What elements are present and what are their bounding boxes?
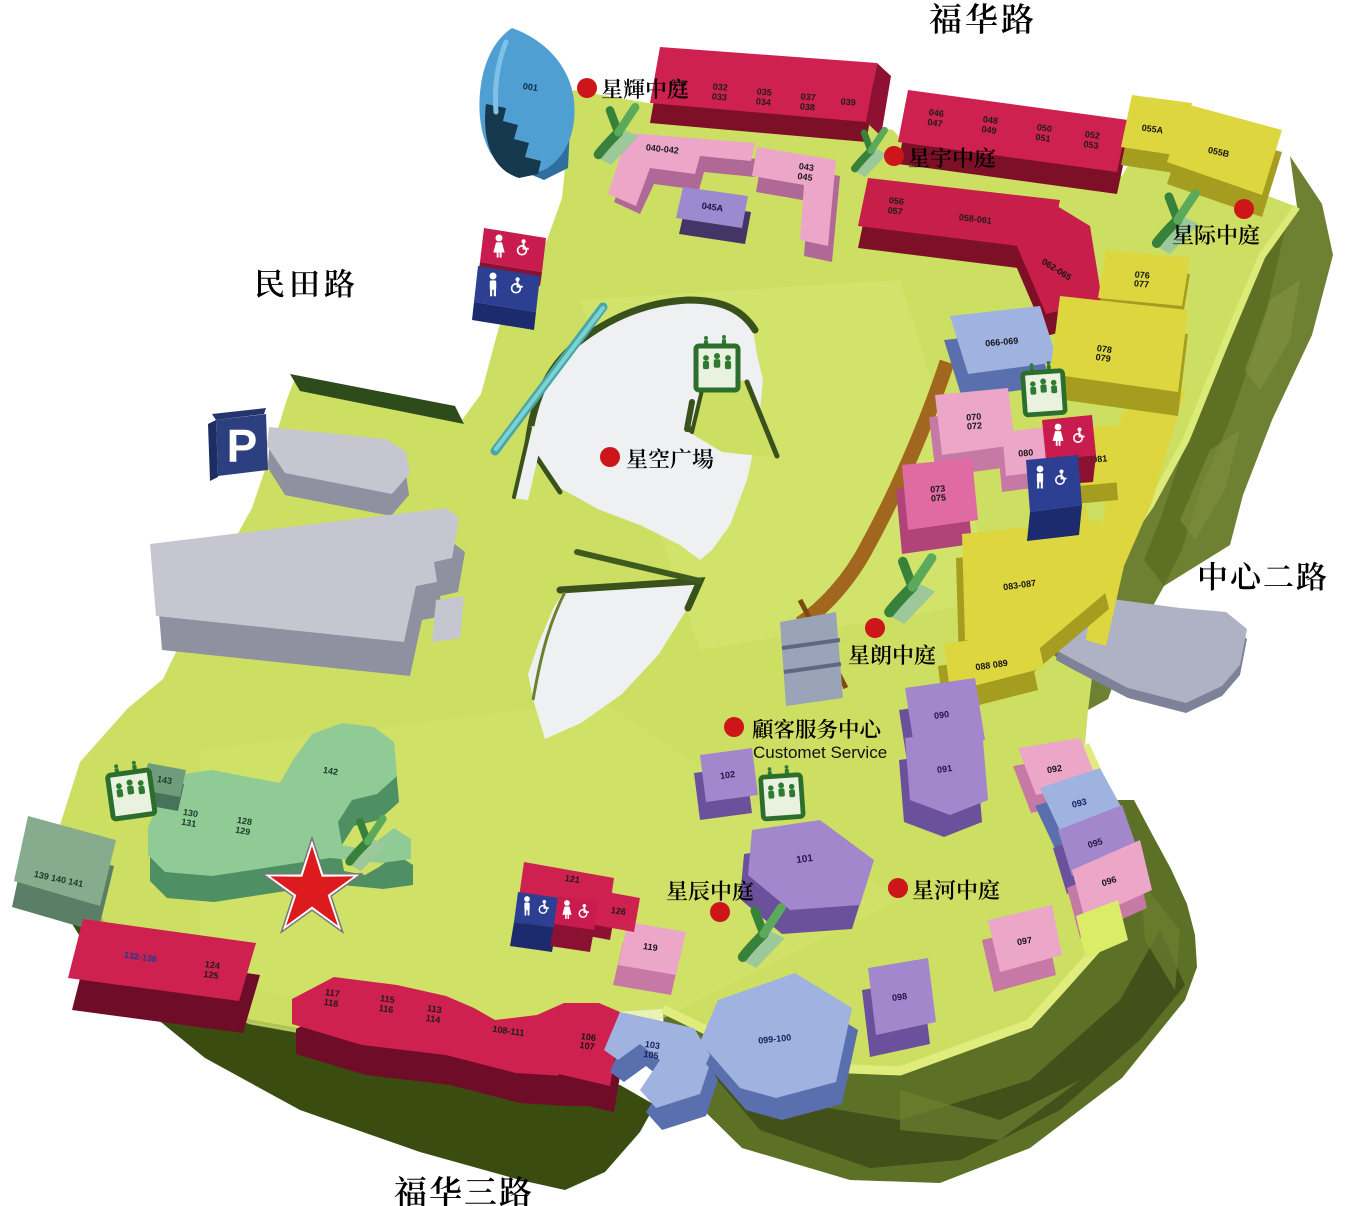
svg-text:050051: 050051 [1035, 122, 1053, 144]
svg-text:119: 119 [643, 941, 659, 953]
svg-text:032033: 032033 [711, 81, 728, 102]
svg-text:037038: 037038 [799, 91, 816, 112]
svg-text:103105: 103105 [643, 1039, 661, 1061]
svg-text:080: 080 [1018, 447, 1034, 458]
svg-text:001: 001 [522, 81, 538, 93]
svg-text:078079: 078079 [1095, 343, 1113, 364]
svg-text:070072: 070072 [966, 411, 983, 431]
svg-text:091: 091 [936, 763, 952, 775]
svg-text:073075: 073075 [930, 483, 947, 503]
svg-text:098: 098 [891, 991, 907, 1003]
svg-text:102: 102 [719, 769, 735, 781]
svg-text:090: 090 [933, 709, 949, 721]
svg-text:121: 121 [564, 873, 580, 885]
svg-text:113114: 113114 [425, 1003, 442, 1025]
svg-text:076077: 076077 [1134, 269, 1151, 289]
svg-text:126: 126 [610, 905, 626, 917]
svg-text:124125: 124125 [203, 959, 221, 981]
svg-text:P: P [227, 420, 258, 472]
svg-text:056057: 056057 [887, 195, 904, 217]
svg-text:043045: 043045 [797, 161, 815, 183]
svg-text:046047: 046047 [927, 107, 945, 129]
svg-text:048049: 048049 [981, 114, 999, 136]
svg-text:035034: 035034 [755, 86, 772, 107]
svg-text:106107: 106107 [579, 1031, 597, 1052]
svg-text:039: 039 [840, 96, 856, 107]
svg-text:Customet Service: Customet Service [753, 743, 887, 762]
svg-text:052053: 052053 [1083, 129, 1101, 151]
svg-text:115116: 115116 [378, 993, 395, 1015]
svg-text:117118: 117118 [323, 987, 340, 1009]
